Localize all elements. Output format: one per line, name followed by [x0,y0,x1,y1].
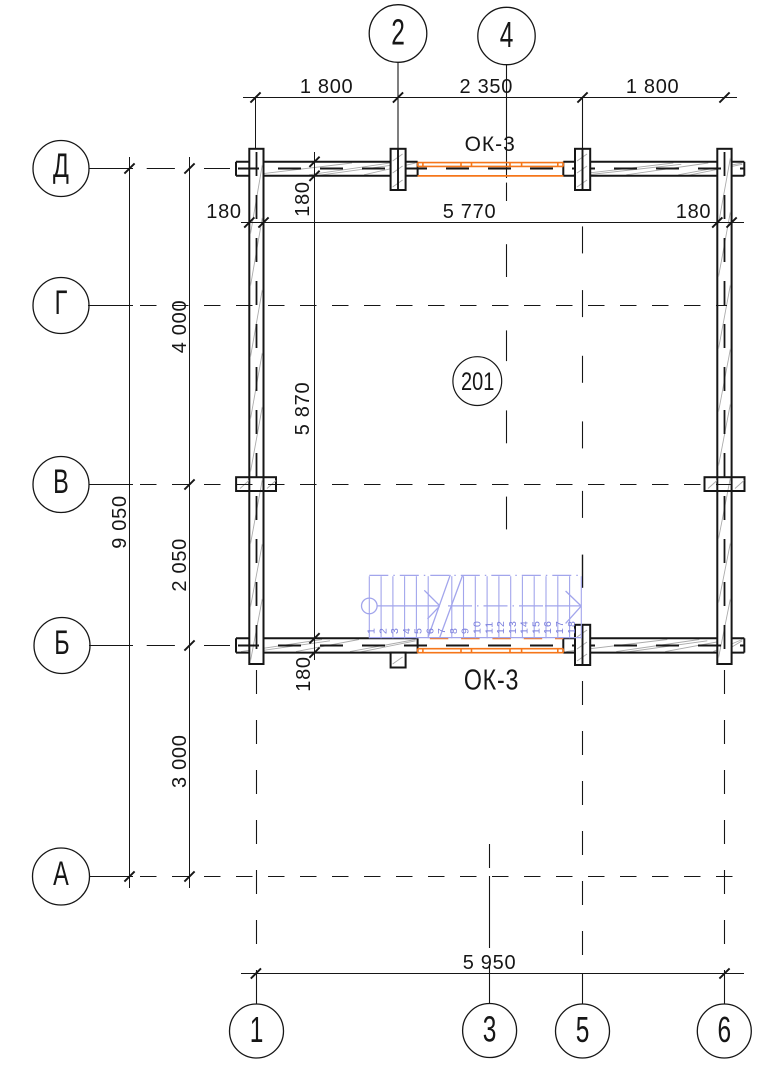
svg-text:12: 12 [495,620,507,634]
svg-text:9 050: 9 050 [109,495,131,549]
svg-text:3 000: 3 000 [169,734,191,788]
svg-text:Г: Г [55,284,68,323]
svg-text:А: А [53,855,69,894]
svg-text:2: 2 [391,12,405,53]
svg-text:1 800: 1 800 [300,76,354,98]
svg-text:Б: Б [54,624,69,663]
svg-text:5 950: 5 950 [463,952,517,974]
svg-text:8: 8 [448,627,460,634]
svg-text:16: 16 [542,620,554,634]
svg-text:В: В [53,463,69,502]
svg-text:6: 6 [717,1009,731,1050]
svg-text:2: 2 [377,627,389,634]
svg-text:13: 13 [507,620,519,634]
svg-text:ОК-3: ОК-3 [465,133,516,156]
svg-text:180: 180 [292,181,314,216]
svg-text:4: 4 [401,627,413,634]
svg-text:2 350: 2 350 [460,76,514,98]
svg-text:180: 180 [206,201,241,223]
svg-text:180: 180 [676,201,711,223]
svg-text:17: 17 [554,620,566,634]
svg-text:18: 18 [566,620,578,634]
svg-text:3: 3 [483,1009,497,1050]
svg-text:201: 201 [461,368,494,396]
svg-text:9: 9 [460,627,472,634]
svg-text:4 000: 4 000 [169,300,191,354]
svg-text:6: 6 [424,627,436,634]
svg-text:5 770: 5 770 [443,201,497,223]
svg-text:4: 4 [500,14,514,55]
svg-text:1: 1 [250,1009,264,1050]
svg-text:5: 5 [413,627,425,634]
svg-text:7: 7 [436,627,448,634]
svg-text:15: 15 [530,620,542,634]
svg-text:10: 10 [472,620,484,634]
svg-text:Д: Д [53,147,69,186]
svg-text:180: 180 [293,656,315,691]
svg-text:14: 14 [519,620,531,634]
svg-text:ОК-3: ОК-3 [464,663,519,696]
svg-text:5 870: 5 870 [292,382,314,436]
svg-text:3: 3 [389,627,401,634]
svg-text:1 800: 1 800 [626,76,680,98]
svg-text:5: 5 [576,1009,590,1050]
svg-text:11: 11 [483,621,495,634]
svg-text:2 050: 2 050 [169,538,191,592]
svg-text:1: 1 [366,627,378,634]
